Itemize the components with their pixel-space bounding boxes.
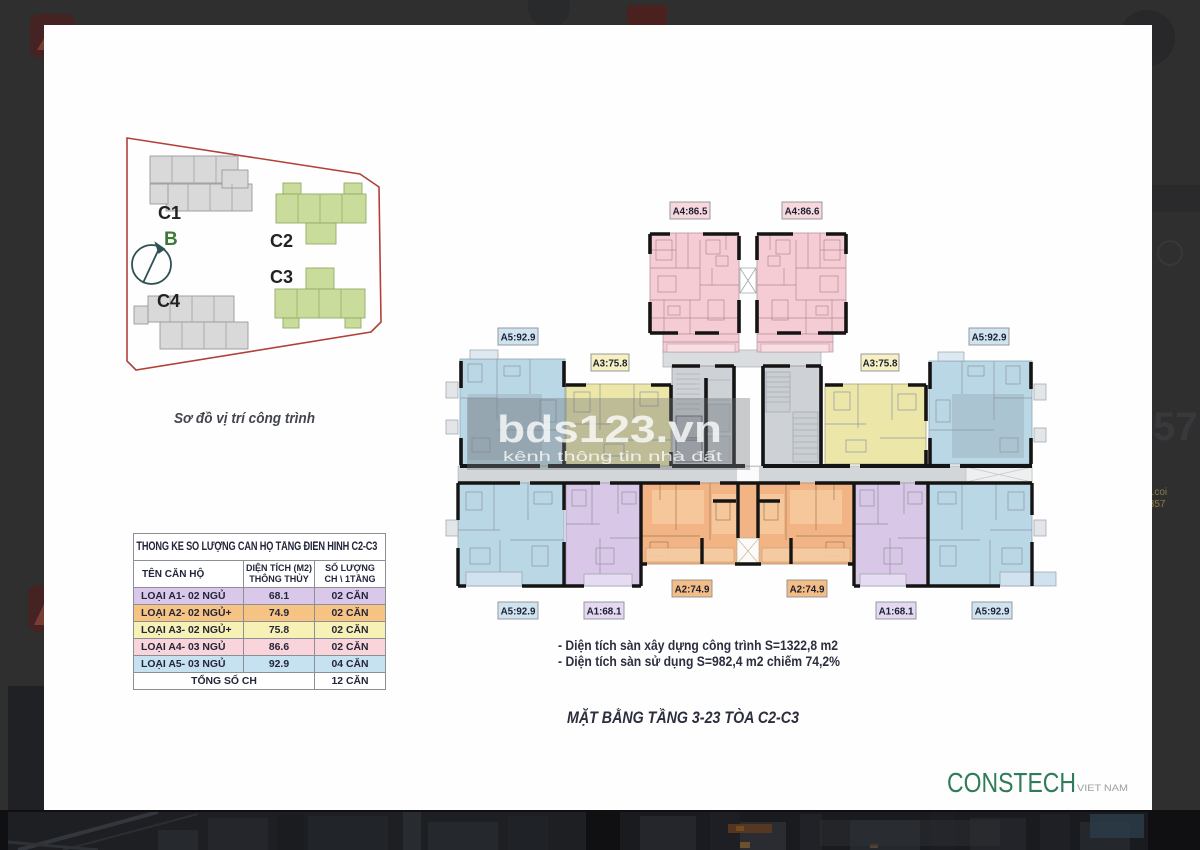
svg-text:VIET NAM: VIET NAM: [1077, 783, 1128, 794]
svg-text:A3:75.8: A3:75.8: [863, 359, 898, 370]
svg-text:CONSTECH: CONSTECH: [947, 767, 1076, 798]
svg-text:A5:92.9: A5:92.9: [972, 333, 1007, 344]
svg-text:- Diện tích sàn sử dụng S=982,: - Diện tích sàn sử dụng S=982,4 m2 chiếm…: [558, 654, 840, 669]
svg-text:A5:92.9: A5:92.9: [501, 607, 536, 618]
svg-text:- Diện tích sàn xây dựng công: - Diện tích sàn xây dựng công trình S=13…: [558, 638, 838, 653]
svg-text:A3:75.8: A3:75.8: [593, 359, 628, 370]
svg-text:bds123.vn: bds123.vn: [497, 409, 722, 451]
svg-text:A5:92.9: A5:92.9: [975, 607, 1010, 618]
svg-text:A4:86.6: A4:86.6: [785, 207, 820, 218]
svg-text:A4:86.5: A4:86.5: [673, 207, 708, 218]
svg-text:A1:68.1: A1:68.1: [587, 607, 622, 618]
svg-text:A2:74.9: A2:74.9: [675, 585, 710, 596]
svg-text:A5:92.9: A5:92.9: [501, 333, 536, 344]
svg-text:A1:68.1: A1:68.1: [879, 607, 914, 618]
svg-text:kênh thông tin nhà đất: kênh thông tin nhà đất: [503, 449, 722, 464]
svg-text:MẶT BẰNG TẦNG 3-23 TÒA C2-C3: MẶT BẰNG TẦNG 3-23 TÒA C2-C3: [567, 708, 799, 727]
svg-text:A2:74.9: A2:74.9: [790, 585, 825, 596]
